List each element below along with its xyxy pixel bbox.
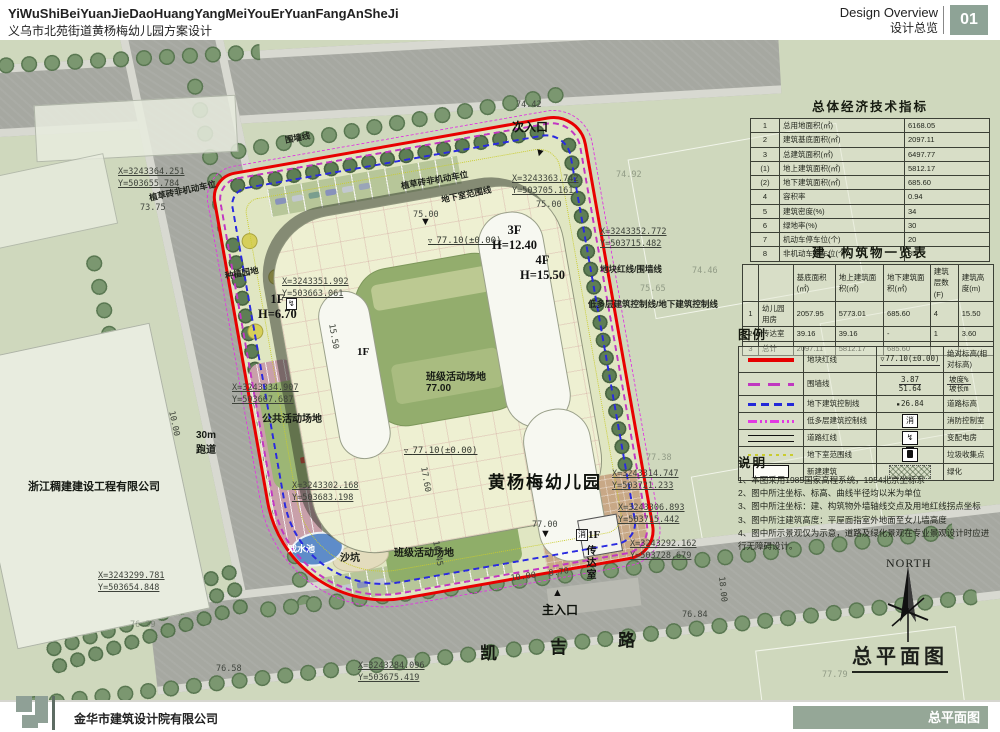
plan-mark-label: ▼ <box>420 216 431 228</box>
economic-cell: (2) <box>751 176 780 190</box>
class-playground-label: 班级活动场地 77.00 <box>426 368 486 394</box>
economic-cell: 建筑基底面积(㎡) <box>780 133 905 147</box>
fire-room-icon: 消 <box>576 529 588 541</box>
car <box>306 590 318 598</box>
wing-3f-label: 3F H=12.40 <box>492 223 537 253</box>
economic-cell: (1) <box>751 161 780 175</box>
economic-cell: 地上建筑面积(㎡) <box>780 161 905 175</box>
building-cell: 4 <box>930 301 958 327</box>
neighbor-company-label: 浙江稠建建设工程有限公司 <box>28 478 160 494</box>
economic-cell: 5 <box>751 204 780 218</box>
building-header-cell: 基底面积(㎡) <box>793 265 835 302</box>
neighbor-building <box>34 95 239 162</box>
main-entrance-label: 主入口 <box>542 601 578 618</box>
economic-cell: 6 <box>751 218 780 232</box>
plan-elev-label: 76.84 <box>682 610 708 620</box>
economic-cell: 685.60 <box>905 176 990 190</box>
road-line-symbol <box>748 435 794 442</box>
note-item: 1、本图采用1985国家高程系统，1954北京坐标系 <box>738 474 990 487</box>
secondary-entrance-label: 次入口 <box>512 118 548 135</box>
plan-coord-label: X=3243302.168 Y=503683.198 <box>292 480 359 505</box>
neighbor-building <box>0 153 118 249</box>
plan-elev-f-label: 74.92 <box>616 170 642 180</box>
plan-coord-label: X=3243306.893 Y=503715.442 <box>618 502 685 527</box>
economic-cell: 30 <box>905 218 990 232</box>
plan-elevm-label: 77.10(±0.00) <box>404 446 477 456</box>
plan-coord-label: X=3243334.907 Y=503667.687 <box>232 382 299 407</box>
building-cell: 幼儿园用房 <box>759 301 794 327</box>
building-cell: 2057.95 <box>793 301 835 327</box>
multi-dash-symbol <box>748 420 794 423</box>
plan-mark-label: ▲ <box>552 587 563 599</box>
building-header-cell <box>743 265 759 302</box>
building-cell: 15.50 <box>958 301 993 327</box>
road-name: 吉 <box>550 633 567 658</box>
elev-mark-symbol: 77.10(±0.00) <box>880 353 939 366</box>
plan-elev-label: 73.75 <box>140 203 166 213</box>
slope-mark-symbol: 3.8751.64 <box>899 374 922 394</box>
economic-cell: 容积率 <box>780 190 905 204</box>
divider <box>943 6 944 34</box>
north-arrow-icon <box>880 564 936 649</box>
legend-cell: 消 <box>877 412 944 429</box>
legend-cell: 变配电房 <box>944 429 994 446</box>
legend-cell: 坡度%坡长m <box>944 372 994 395</box>
economic-cell: 3 <box>751 147 780 161</box>
wing-1f-label: 1F H=6.70 <box>258 292 297 322</box>
road-elev-symbol: 26.84 <box>896 398 923 409</box>
car <box>323 587 335 595</box>
plan-elev-f-label: 76.39 <box>130 620 156 630</box>
building-cell: 685.60 <box>884 301 931 327</box>
notes-title: 说明 <box>738 452 994 471</box>
economic-cell: 2097.11 <box>905 133 990 147</box>
water-pool-label: 戏水池 <box>288 542 315 555</box>
note-item: 3、图中所注建筑高度：平屋面指室外地面至女儿墙高度 <box>738 514 990 527</box>
plan-mark-label: ▼ <box>540 528 551 540</box>
title-block: YiWuShiBeiYuanJieDaoHuangYangMeiYouErYua… <box>0 0 1000 40</box>
economic-cell: 0.94 <box>905 190 990 204</box>
economic-cell: 地下建筑面积(㎡) <box>780 176 905 190</box>
legend-cell: 77.10(±0.00) <box>877 347 944 373</box>
economic-table-title: 总体经济技术指标 <box>746 96 994 115</box>
coord-ne: X=3243363.742 Y=503705.161 <box>512 173 579 198</box>
plan-elev-label: 74.42 <box>516 100 542 110</box>
building-cell: 1 <box>743 301 759 327</box>
plan-coord-label: X=3243284.096 Y=503675.419 <box>358 660 425 685</box>
power-box-symbol: ↯ <box>902 431 918 445</box>
economic-cell: 建筑密度(%) <box>780 204 905 218</box>
plan-coord-label: X=3243314.747 Y=503721.233 <box>612 468 679 493</box>
legend-cell: 道路红线 <box>804 429 877 446</box>
building-header-cell: 建筑层数(F) <box>930 265 958 302</box>
plan-coord-label: X=3243292.162 Y=503728.679 <box>630 538 697 563</box>
economic-cell: 总用地面积(㎡) <box>780 119 905 133</box>
sheet-type: Design Overview 设计总览 <box>840 5 938 36</box>
building-header-cell <box>759 265 794 302</box>
legend-cell: 低多层建筑控制线 <box>804 412 877 429</box>
legend-cell: 道路标高 <box>944 395 994 412</box>
note-item: 3、图中所注坐标：建、构筑物外墙轴线交点及用地红线拐点坐标 <box>738 500 990 513</box>
economic-cell: 2 <box>751 133 780 147</box>
legend-cell: 地块红线 <box>804 347 877 373</box>
building-cell: 5773.01 <box>835 301 883 327</box>
kindergarten-name-label: 黄杨梅幼儿园 <box>488 468 602 493</box>
legend-cell <box>739 429 804 446</box>
project-title-pinyin: YiWuShiBeiYuanJieDaoHuangYangMeiYouErYua… <box>8 6 399 21</box>
legend-cell: 绝对标高(相对标高) <box>944 347 994 373</box>
site-plan: 总体经济技术指标 1总用地面积(㎡)6168.052建筑基底面积(㎡)2097.… <box>0 40 1000 700</box>
legend-cell <box>739 347 804 373</box>
legend-cell: 地下建筑控制线 <box>804 395 877 412</box>
legend-cell: 26.84 <box>877 395 944 412</box>
notes-list: 1、本图采用1985国家高程系统，1954北京坐标系2、图中所注坐标、标高、曲线… <box>738 474 990 553</box>
legend-cell: 围墙线 <box>804 372 877 395</box>
plan-elev-f-label: 77.79 <box>822 670 848 680</box>
notes-panel: 说明 1、本图采用1985国家高程系统，1954北京坐标系2、图中所注坐标、标高… <box>738 452 994 553</box>
sheet-name-bar: 总平面图 <box>793 706 988 729</box>
running-track-label: 30m 跑道 <box>196 430 216 456</box>
note-item: 4、图中所示景观仅为示意，道路及绿化景观在专业景观设计时应进行无障碍设计。 <box>738 527 990 553</box>
legend-cell <box>739 372 804 395</box>
public-playground-label: 公共活动场地 <box>262 410 322 425</box>
page-number-badge: 01 <box>950 5 988 35</box>
design-company: 金华市建筑设计院有限公司 <box>74 710 218 727</box>
wing-4f-label: 4F H=15.50 <box>520 253 565 283</box>
road-name: 路 <box>618 626 635 651</box>
economic-table: 1总用地面积(㎡)6168.052建筑基底面积(㎡)2097.113总建筑面积(… <box>750 118 990 262</box>
plan-elev-label: 75.00 <box>536 200 562 210</box>
plan-elev-f-label: 74.46 <box>692 266 718 276</box>
economic-cell: 总建筑面积(㎡) <box>780 147 905 161</box>
legend-cell <box>739 395 804 412</box>
sheet: YiWuShiBeiYuanJieDaoHuangYangMeiYouErYua… <box>0 0 1000 732</box>
plan-bld2-label: 1F <box>588 529 600 541</box>
plan-elev-f-label: 77.38 <box>646 453 672 463</box>
economic-indicators-panel: 总体经济技术指标 1总用地面积(㎡)6168.052建筑基底面积(㎡)2097.… <box>746 96 994 262</box>
economic-cell: 6168.05 <box>905 119 990 133</box>
fence-line-symbol <box>748 383 794 386</box>
plan-coord-label: X=3243299.781 Y=503654.848 <box>98 570 165 595</box>
blue-dash-symbol <box>748 403 794 406</box>
fire-box-symbol: 消 <box>902 414 918 428</box>
legend-cell: 3.8751.64 <box>877 372 944 395</box>
legend-cell: 消防控制室 <box>944 412 994 429</box>
plan-elev-label: 76.58 <box>216 664 242 674</box>
company-logo <box>16 696 66 732</box>
redline-fence-label: 地块红线/围墙线 <box>600 263 662 275</box>
plan-bld2-label: 1F <box>357 346 369 358</box>
plan-coord-label: X=3243352.772 Y=503715.482 <box>600 226 667 251</box>
legend-cell: ↯ <box>877 429 944 446</box>
legend-title: 图例 <box>738 324 996 343</box>
plan-elev-f-label: 75.65 <box>640 284 666 294</box>
economic-cell: 4 <box>751 190 780 204</box>
building-header-cell: 地下建筑面积(㎡) <box>884 265 931 302</box>
note-item: 2、图中所注坐标、标高、曲线半径均以米为单位 <box>738 487 990 500</box>
plan-elevm-label: 77.10(±0.00) <box>428 236 501 246</box>
economic-cell: 6497.77 <box>905 147 990 161</box>
red-line-symbol <box>748 358 794 362</box>
control-line-label: 低多层建筑控制线/地下建筑控制线 <box>588 298 718 310</box>
legend-cell <box>739 412 804 429</box>
building-header-cell: 地上建筑面积(㎡) <box>835 265 883 302</box>
economic-cell: 绿地率(%) <box>780 218 905 232</box>
sand-pit-label: 沙坑 <box>340 549 360 564</box>
class-playground-label: 班级活动场地 <box>394 544 454 559</box>
gatehouse-label: 传达室 <box>582 545 597 581</box>
economic-cell: 34 <box>905 204 990 218</box>
economic-cell: 5812.17 <box>905 161 990 175</box>
economic-cell: 1 <box>751 119 780 133</box>
road-name: 凯 <box>480 639 497 664</box>
building-table-title: 建、构筑物一览表 <box>742 242 998 261</box>
project-title-zh: 义乌市北苑街道黄杨梅幼儿园方案设计 <box>8 22 212 39</box>
building-header-cell: 建筑高度(m) <box>958 265 993 302</box>
footer: 金华市建筑设计院有限公司 总平面图 <box>0 700 1000 732</box>
